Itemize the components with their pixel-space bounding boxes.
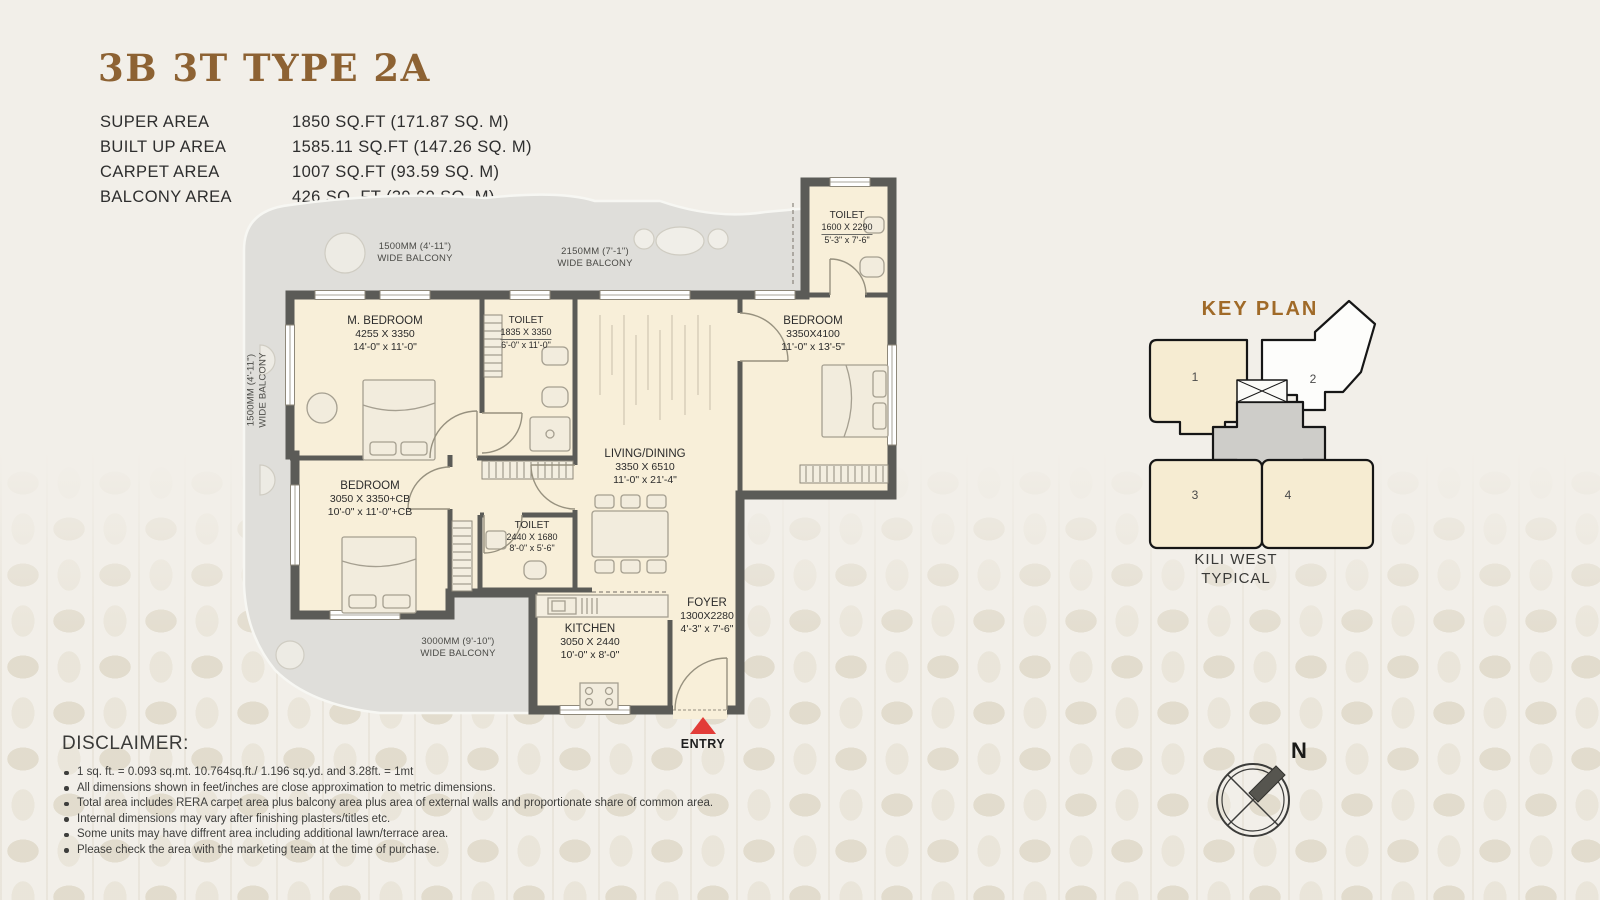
balcony-label-left: 1500MM (4'-11") WIDE BALCONY <box>246 352 269 427</box>
room-label-master-bedroom: M. BEDROOM 4255 X 3350 14'-0" x 11'-0" <box>347 315 422 354</box>
disclaimer-item: Some units may have diffrent area includ… <box>62 827 713 843</box>
area-label: BUILT UP AREA <box>100 138 292 157</box>
bedroom2-bed-icon <box>342 537 416 613</box>
key-plan-unit-3-number: 3 <box>1192 488 1199 502</box>
key-plan-unit-3-shape <box>1150 460 1262 548</box>
area-value: 1850 SQ.FT (171.87 SQ. M) <box>292 113 509 132</box>
room-label-toilet-top: TOILET 1600 X 2290 5'-3" x 7'-6" <box>821 210 872 247</box>
stove-icon <box>580 683 618 709</box>
dining-table-icon <box>592 495 668 573</box>
disclaimer: DISCLAIMER: 1 sq. ft. = 0.093 sq.mt. 10.… <box>62 733 713 858</box>
balcony-label-bottom: 3000MM (9'-10") WIDE BALCONY <box>420 636 495 659</box>
disclaimer-item: Please check the area with the marketing… <box>62 843 713 859</box>
key-plan-caption: KILI WEST TYPICAL <box>1125 550 1347 588</box>
room-label-kitchen: KITCHEN 3050 X 2440 10'-0" x 8'-0" <box>560 623 620 662</box>
kitchen-counter-icon <box>536 595 668 617</box>
disclaimer-list: 1 sq. ft. = 0.093 sq.mt. 10.764sq.ft./ 1… <box>62 765 713 858</box>
room-label-bedroom-2: BEDROOM 3050 X 3350+CB 10'-0" x 11'-0"+C… <box>328 480 413 519</box>
room-label-foyer: FOYER 1300X2280 4'-3" x 7'-6" <box>680 597 734 636</box>
key-plan: KEY PLAN 1 2 3 4 KILI WEST TYPICAL <box>1125 292 1395 602</box>
key-plan-unit-4-number: 4 <box>1285 488 1292 502</box>
armchair-icon <box>307 393 337 423</box>
key-plan-unit-2-number: 2 <box>1310 372 1317 386</box>
compass: N <box>1193 713 1353 838</box>
area-row-super: SUPER AREA 1850 SQ.FT (171.87 SQ. M) <box>100 110 532 135</box>
north-label: N <box>1291 738 1307 763</box>
entry-arrow-icon <box>690 717 716 734</box>
area-value: 1585.11 SQ.FT (147.26 SQ. M) <box>292 138 532 157</box>
page-title: 3B 3T TYPE 2A <box>98 46 431 90</box>
key-plan-unit-1-number: 1 <box>1192 370 1199 384</box>
room-label-toilet-1: TOILET 1835 X 3350 6'-0" x 11'-0" <box>500 315 551 352</box>
key-plan-unit-4-shape <box>1262 460 1373 548</box>
balcony-label-top-right: 2150MM (7'-1") WIDE BALCONY <box>557 246 632 269</box>
bedroom-bed-icon <box>822 365 888 437</box>
disclaimer-item: All dimensions shown in feet/inches are … <box>62 781 713 797</box>
area-label: SUPER AREA <box>100 113 292 132</box>
disclaimer-item: Internal dimensions may vary after finis… <box>62 812 713 828</box>
room-label-toilet-2: TOILET 2440 X 1680 8'-0" x 5'-6" <box>506 520 557 555</box>
area-row-builtup: BUILT UP AREA 1585.11 SQ.FT (147.26 SQ. … <box>100 135 532 160</box>
key-plan-unit-1-shape <box>1150 340 1247 434</box>
disclaimer-item: Total area includes RERA carpet area plu… <box>62 796 713 812</box>
room-label-bedroom-right: BEDROOM 3350X4100 11'-0" x 13'-5" <box>781 315 845 354</box>
compass-icon: N <box>1193 713 1353 838</box>
room-label-living-dining: LIVING/DINING 3350 X 6510 11'-0" x 21'-4… <box>604 448 685 487</box>
master-bed-icon <box>363 380 435 460</box>
disclaimer-title: DISCLAIMER: <box>62 733 713 755</box>
disclaimer-item: 1 sq. ft. = 0.093 sq.mt. 10.764sq.ft./ 1… <box>62 765 713 781</box>
floor-plan: M. BEDROOM 4255 X 3350 14'-0" x 11'-0" T… <box>230 165 920 765</box>
key-plan-drawing: 1 2 3 4 <box>1125 292 1395 552</box>
balcony-label-top-left: 1500MM (4'-11") WIDE BALCONY <box>377 241 452 264</box>
